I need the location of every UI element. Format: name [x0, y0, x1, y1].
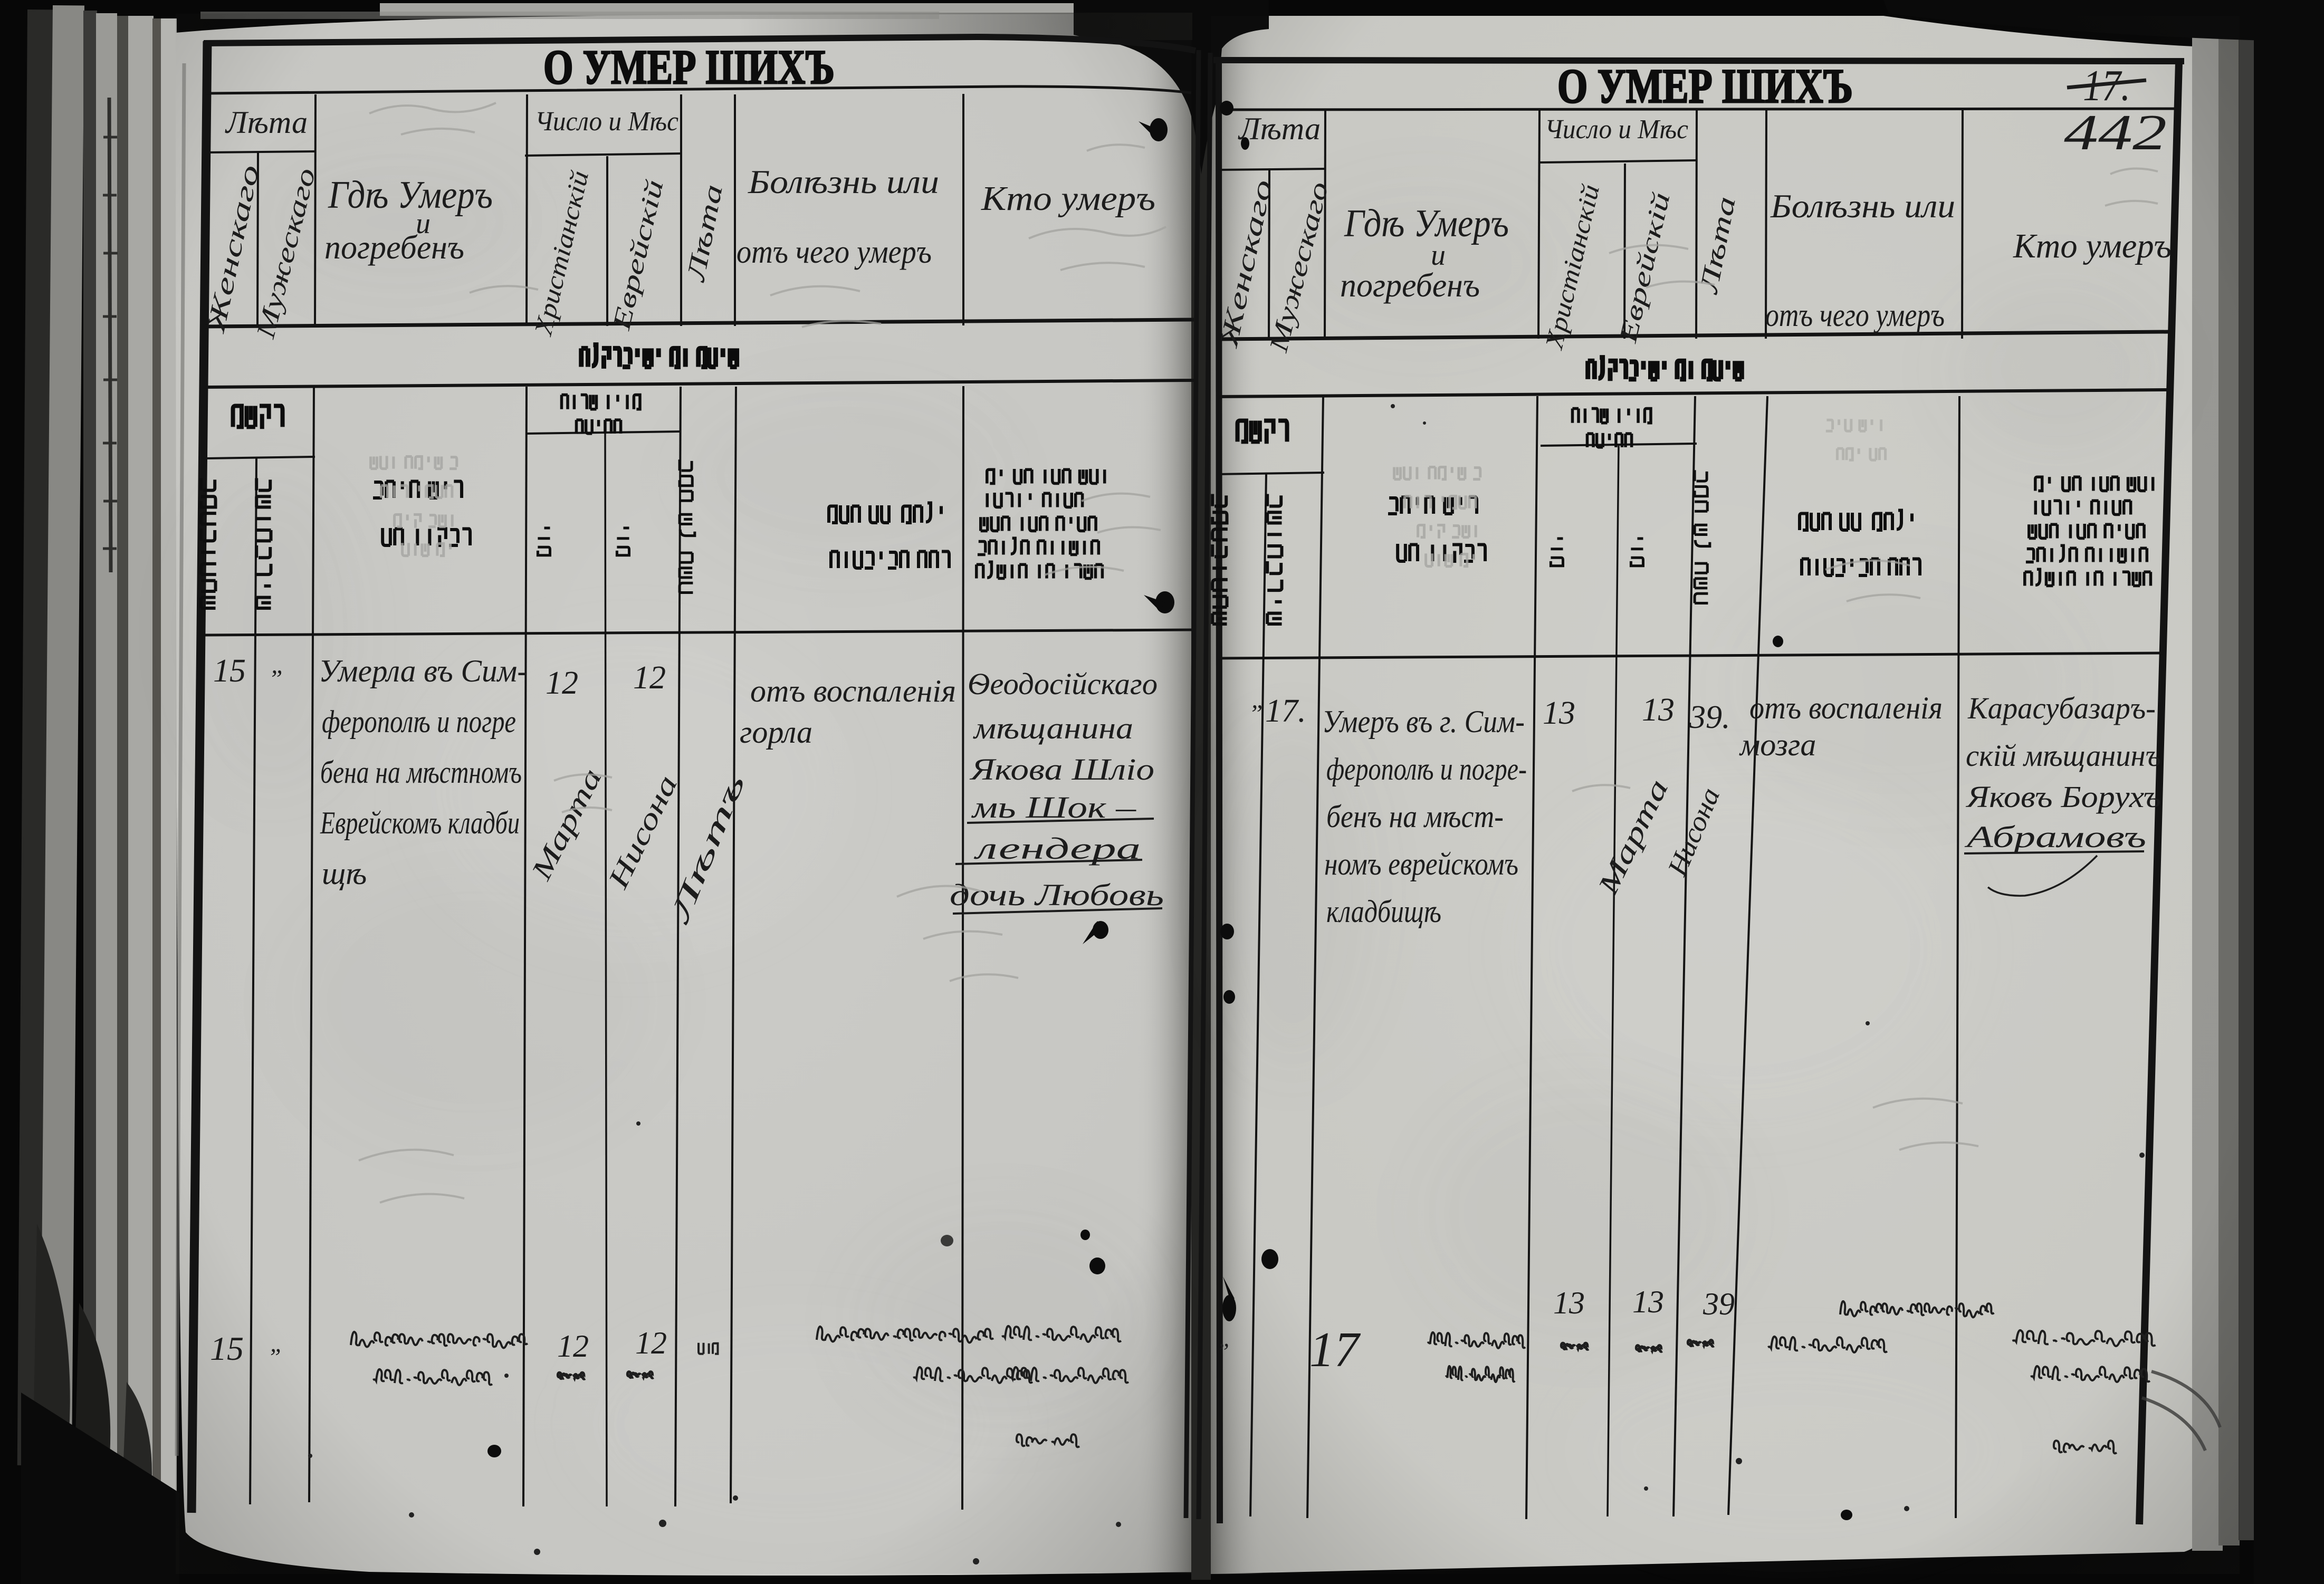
svg-text:39: 39: [1703, 1287, 1735, 1321]
svg-text:дочь Любовь: дочь Любовь: [950, 878, 1164, 912]
svg-text:бенъ на мѣст-: бенъ на мѣст-: [1326, 799, 1504, 834]
svg-text:кладбищѣ: кладбищѣ: [1326, 894, 1441, 929]
svg-text:12: 12: [546, 665, 578, 701]
svg-text:Умеръ въ г. Сим-: Умеръ въ г. Сим-: [1322, 704, 1525, 739]
svg-text:горла: горла: [740, 715, 812, 750]
svg-text:Яковъ Борухъ: Яковъ Борухъ: [1966, 780, 2161, 814]
svg-text:ферополѣ и погре: ферополѣ и погре: [322, 704, 516, 739]
svg-text:бена на мѣстномъ: бена на мѣстномъ: [320, 755, 522, 790]
svg-text:отъ воспаленія: отъ воспаленія: [1749, 690, 1943, 725]
svg-text:13: 13: [1642, 692, 1675, 728]
svg-text:Число и Мѣс: Число и Мѣс: [1545, 114, 1688, 145]
svg-text:погребенъ: погребенъ: [324, 228, 464, 266]
svg-text:погребенъ: погребенъ: [1340, 266, 1480, 304]
svg-text:Еврейскомъ кладби: Еврейскомъ кладби: [320, 805, 520, 840]
svg-text:Гдѣ Умеръ: Гдѣ Умеръ: [328, 174, 493, 217]
svg-text:15: 15: [213, 653, 246, 689]
svg-text:Кто умеръ: Кто умеръ: [2013, 227, 2172, 265]
svg-text:Болѣзнь или: Болѣзнь или: [1770, 187, 1955, 225]
svg-text:Якова Шліо: Якова Шліо: [970, 752, 1154, 786]
svg-text:Число и Мѣс: Число и Мѣс: [535, 107, 678, 137]
svg-text:Умерла въ Сим-: Умерла въ Сим-: [319, 654, 528, 688]
svg-text:ферополѣ и погре-: ферополѣ и погре-: [1326, 752, 1527, 786]
svg-text:„: „: [270, 1330, 284, 1357]
svg-text:О УМЕР ШИХЪ: О УМЕР ШИХЪ: [543, 40, 835, 94]
svg-text:щѣ: щѣ: [322, 856, 367, 891]
svg-text:13: 13: [1553, 1285, 1585, 1320]
svg-text:12: 12: [633, 660, 666, 696]
svg-text:15: 15: [210, 1330, 244, 1367]
svg-text:отъ чего умеръ: отъ чего умеръ: [1765, 297, 1945, 333]
svg-text:„: „: [1251, 686, 1266, 714]
svg-text:„: „: [271, 651, 285, 679]
svg-text:Абрамовъ: Абрамовъ: [1964, 820, 2146, 854]
svg-text:скій мѣщанинъ: скій мѣщанинъ: [1966, 738, 2161, 773]
svg-text:442: 442: [2064, 104, 2167, 160]
svg-text:„: „: [1219, 1326, 1231, 1351]
svg-text:Карасубазаръ-: Карасубазаръ-: [1967, 691, 2156, 725]
svg-text:12: 12: [557, 1329, 589, 1364]
svg-text:номъ еврейскомъ: номъ еврейскомъ: [1324, 847, 1518, 881]
svg-text:17: 17: [1309, 1322, 1361, 1377]
svg-text:Болѣзнь или: Болѣзнь или: [748, 163, 939, 200]
svg-text:Ѳеодосійскаго: Ѳеодосійскаго: [968, 667, 1158, 701]
svg-text:отъ чего умеръ: отъ чего умеръ: [737, 234, 932, 270]
svg-text:Лѣта: Лѣта: [225, 105, 308, 140]
svg-text:17.: 17.: [1265, 693, 1306, 729]
svg-text:39.: 39.: [1689, 699, 1730, 735]
svg-text:мѣщанина: мѣщанина: [973, 711, 1133, 745]
svg-text:Гдѣ Умеръ: Гдѣ Умеръ: [1344, 202, 1509, 245]
svg-text:13: 13: [1543, 695, 1575, 731]
svg-text:мозга: мозга: [1739, 727, 1816, 762]
svg-text:О УМЕР ШИХЪ: О УМЕР ШИХЪ: [1557, 59, 1853, 113]
svg-text:Кто умеръ: Кто умеръ: [981, 179, 1155, 218]
svg-text:12: 12: [635, 1326, 667, 1360]
svg-text:13: 13: [1632, 1284, 1664, 1319]
svg-text:отъ воспаленія: отъ воспаленія: [750, 674, 956, 708]
svg-text:Лѣта: Лѣта: [1238, 111, 1321, 146]
